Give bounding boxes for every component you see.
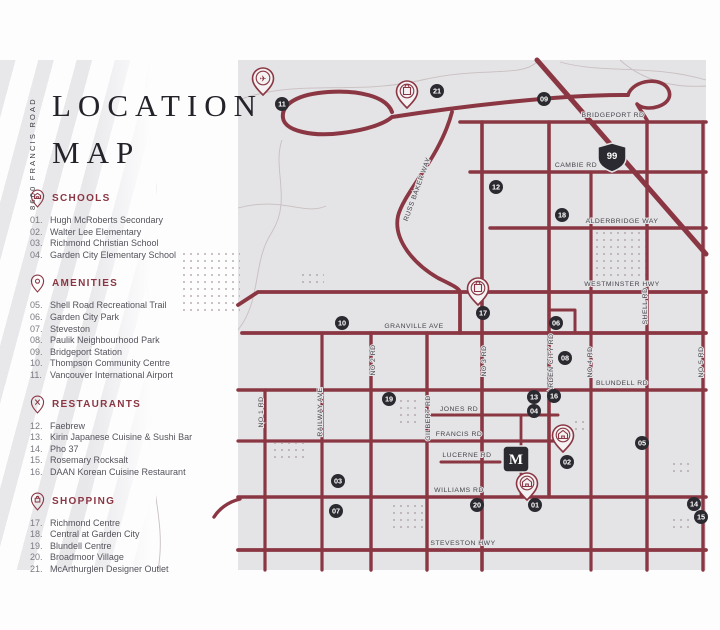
legend-item-number: 03.: [30, 238, 50, 250]
legend-item-name: Kirin Japanese Cuisine & Sushi Bar: [50, 432, 238, 444]
map-badge-09: 09: [537, 92, 551, 106]
legend-item-name: Steveston: [50, 324, 238, 336]
legend-item: 20.Broadmoor Village: [30, 552, 238, 564]
map-badge-number: 11: [278, 100, 286, 109]
legend-item: 01.Hugh McRoberts Secondary: [30, 215, 238, 227]
legend-item-number: 14.: [30, 444, 50, 456]
legend-header-label: SCHOOLS: [52, 193, 111, 204]
legend-item: 18.Central at Garden City: [30, 529, 238, 541]
legend-header-amenities: AMENITIES: [30, 274, 238, 293]
map-badge-02: 02: [560, 455, 574, 469]
legend-item-name: Blundell Centre: [50, 541, 238, 553]
legend-item-name: Bridgeport Station: [50, 347, 238, 359]
legend-item-name: Paulik Neighbourhood Park: [50, 335, 238, 347]
road-label: NO 5 RD: [698, 346, 705, 377]
legend-section-restaurants: RESTAURANTS12.Faebrew13.Kirin Japanese C…: [30, 395, 238, 479]
legend-item-number: 19.: [30, 541, 50, 553]
map-badge-15: 15: [694, 510, 708, 524]
map-badge-03: 03: [331, 474, 345, 488]
legend-item-number: 13.: [30, 432, 50, 444]
legend-item-name: Broadmoor Village: [50, 552, 238, 564]
legend-item-name: Central at Garden City: [50, 529, 238, 541]
map-badge-01: 01: [528, 498, 542, 512]
legend-item: 12.Faebrew: [30, 421, 238, 433]
legend-item-number: 04.: [30, 250, 50, 262]
map-badge-16: 16: [547, 389, 561, 403]
legend-item-number: 05.: [30, 300, 50, 312]
legend-item-name: Thompson Community Centre: [50, 358, 238, 370]
legend-item-name: Hugh McRoberts Secondary: [50, 215, 238, 227]
road-label: NO 3 RD: [481, 345, 488, 376]
road-label: RAILWAY AVE: [317, 387, 324, 436]
map-badge-number: 05: [638, 439, 646, 448]
road-label: GILBERT RD: [425, 395, 432, 441]
legend-item-name: McArthurglen Designer Outlet: [50, 564, 238, 576]
map-badge-08: 08: [558, 351, 572, 365]
legend-item-number: 09.: [30, 347, 50, 359]
map-badge-11: 11: [275, 97, 289, 111]
map-badge-04: 04: [527, 404, 541, 418]
road-label: BLUNDELL RD: [596, 380, 648, 387]
legend-item-name: Garden City Park: [50, 312, 238, 324]
road-label: GRANVILLE AVE: [384, 323, 443, 330]
legend-header-schools: SCHOOLS: [30, 189, 238, 208]
map-badge-13: 13: [527, 390, 541, 404]
road-label: FRANCIS RD: [436, 431, 483, 438]
legend-item: 14.Pho 37: [30, 444, 238, 456]
page-title-line2: MAP: [52, 129, 263, 176]
road-label: STEVESTON HWY: [430, 540, 495, 547]
map-badge-number: 06: [552, 319, 560, 328]
highway-99-label: 99: [607, 151, 618, 162]
legend-item-name: Richmond Centre: [50, 518, 238, 530]
map-badge-number: 10: [338, 319, 346, 328]
legend-item-name: Pho 37: [50, 444, 238, 456]
page-title: LOCATION MAP: [52, 82, 263, 176]
legend-item-number: 15.: [30, 455, 50, 467]
legend-section-shopping: SHOPPING17.Richmond Centre18.Central at …: [30, 492, 238, 576]
legend-item-number: 21.: [30, 564, 50, 576]
map-badge-number: 04: [530, 407, 539, 416]
legend-item-number: 01.: [30, 215, 50, 227]
map-badge-18: 18: [555, 208, 569, 222]
map-badge-19: 19: [382, 392, 396, 406]
legend-item-name: Shell Road Recreational Trail: [50, 300, 238, 312]
legend-item: 03.Richmond Christian School: [30, 238, 238, 250]
legend-item-number: 17.: [30, 518, 50, 530]
road-label: CAMBIE RD: [555, 162, 597, 169]
legend-header-label: SHOPPING: [52, 496, 115, 507]
map-badge-number: 08: [561, 354, 569, 363]
road-label: WESTMINSTER HWY: [584, 281, 659, 288]
road-label: ALDERBRIDGE WAY: [586, 218, 659, 225]
map-badge-21: 21: [430, 84, 444, 98]
legend-item: 10.Thompson Community Centre: [30, 358, 238, 370]
legend-item-name: Vancouver International Airport: [50, 370, 238, 382]
map-badge-05: 05: [635, 436, 649, 450]
legend-item: 17.Richmond Centre: [30, 518, 238, 530]
site-marker-label: M: [509, 452, 523, 468]
map-badge-number: 15: [697, 513, 705, 522]
legend-item: 15.Rosemary Rocksalt: [30, 455, 238, 467]
legend-item: 09.Bridgeport Station: [30, 347, 238, 359]
road-label: SHELL RD: [642, 288, 649, 325]
page-title-line1: LOCATION: [52, 82, 263, 129]
legend-header-shopping: SHOPPING: [30, 492, 238, 511]
map-badge-number: 19: [385, 395, 393, 404]
map-badge-number: 17: [479, 309, 487, 318]
legend-item-name: Richmond Christian School: [50, 238, 238, 250]
legend-item: 02.Walter Lee Elementary: [30, 227, 238, 239]
road-label: GARDEN CITY RD: [548, 333, 555, 398]
legend-item: 16.DAAN Korean Cuisine Restaurant: [30, 467, 238, 479]
map-badge-12: 12: [489, 180, 503, 194]
legend-item-name: DAAN Korean Cuisine Restaurant: [50, 467, 238, 479]
map-badge-number: 09: [540, 95, 548, 104]
legend-section-schools: SCHOOLS01.Hugh McRoberts Secondary02.Wal…: [30, 189, 238, 261]
page: BRIDGEPORT RDCAMBIE RDALDERBRIDGE WAYWES…: [0, 0, 720, 630]
map-badge-number: 18: [558, 211, 566, 220]
road-label: BRIDGEPORT RD: [582, 112, 645, 119]
legend-item: 08.Paulik Neighbourhood Park: [30, 335, 238, 347]
legend: SCHOOLS01.Hugh McRoberts Secondary02.Wal…: [30, 189, 238, 588]
map-badge-number: 07: [332, 507, 340, 516]
shopping-pin-icon: [30, 492, 45, 511]
map-badge-number: 03: [334, 477, 342, 486]
legend-item: 05.Shell Road Recreational Trail: [30, 300, 238, 312]
map-badge-number: 20: [473, 501, 481, 510]
map-badge-10: 10: [335, 316, 349, 330]
legend-item-number: 02.: [30, 227, 50, 239]
road-label: NO 2 RD: [370, 344, 377, 375]
amenities-pin-icon: [30, 274, 45, 293]
legend-item-name: Faebrew: [50, 421, 238, 433]
map-badge-number: 14: [690, 500, 699, 509]
legend-header-label: RESTAURANTS: [52, 399, 141, 410]
legend-item: 07.Steveston: [30, 324, 238, 336]
legend-header-label: AMENITIES: [52, 278, 118, 289]
legend-item: 06.Garden City Park: [30, 312, 238, 324]
legend-item: 13.Kirin Japanese Cuisine & Sushi Bar: [30, 432, 238, 444]
legend-item: 04.Garden City Elementary School: [30, 250, 238, 262]
legend-header-restaurants: RESTAURANTS: [30, 395, 238, 414]
legend-item-number: 20.: [30, 552, 50, 564]
road-label: LUCERNE RD: [442, 452, 491, 459]
map-badge-number: 13: [530, 393, 538, 402]
legend-item-number: 06.: [30, 312, 50, 324]
map-badge-number: 01: [531, 501, 539, 510]
road-label: WILLIAMS RD: [434, 487, 484, 494]
map-badge-number: 02: [563, 458, 571, 467]
restaurants-pin-icon: [30, 395, 45, 414]
legend-item-number: 16.: [30, 467, 50, 479]
legend-item: 21.McArthurglen Designer Outlet: [30, 564, 238, 576]
legend-item-name: Walter Lee Elementary: [50, 227, 238, 239]
legend-item-number: 07.: [30, 324, 50, 336]
map-badge-07: 07: [329, 504, 343, 518]
road-label: JONES RD: [440, 406, 478, 413]
schools-pin-icon: [30, 189, 45, 208]
legend-item-number: 08.: [30, 335, 50, 347]
road-label: NO 1 RD: [258, 396, 265, 427]
map-badge-06: 06: [549, 316, 563, 330]
legend-item-number: 18.: [30, 529, 50, 541]
legend-item: 11.Vancouver International Airport: [30, 370, 238, 382]
map-badge-number: 16: [550, 392, 558, 401]
legend-item-name: Rosemary Rocksalt: [50, 455, 238, 467]
map-badge-number: 12: [492, 183, 500, 192]
legend-section-amenities: AMENITIES05.Shell Road Recreational Trai…: [30, 274, 238, 381]
map-badge-number: 21: [433, 87, 441, 96]
legend-item-number: 11.: [30, 370, 50, 382]
map-badge-17: 17: [476, 306, 490, 320]
legend-item-number: 10.: [30, 358, 50, 370]
legend-item: 19.Blundell Centre: [30, 541, 238, 553]
site-marker: M: [503, 446, 529, 472]
legend-item-name: Garden City Elementary School: [50, 250, 238, 262]
map-badge-20: 20: [470, 498, 484, 512]
legend-item-number: 12.: [30, 421, 50, 433]
road-label: NO 4 RD: [587, 346, 594, 377]
map-badge-14: 14: [687, 497, 701, 511]
